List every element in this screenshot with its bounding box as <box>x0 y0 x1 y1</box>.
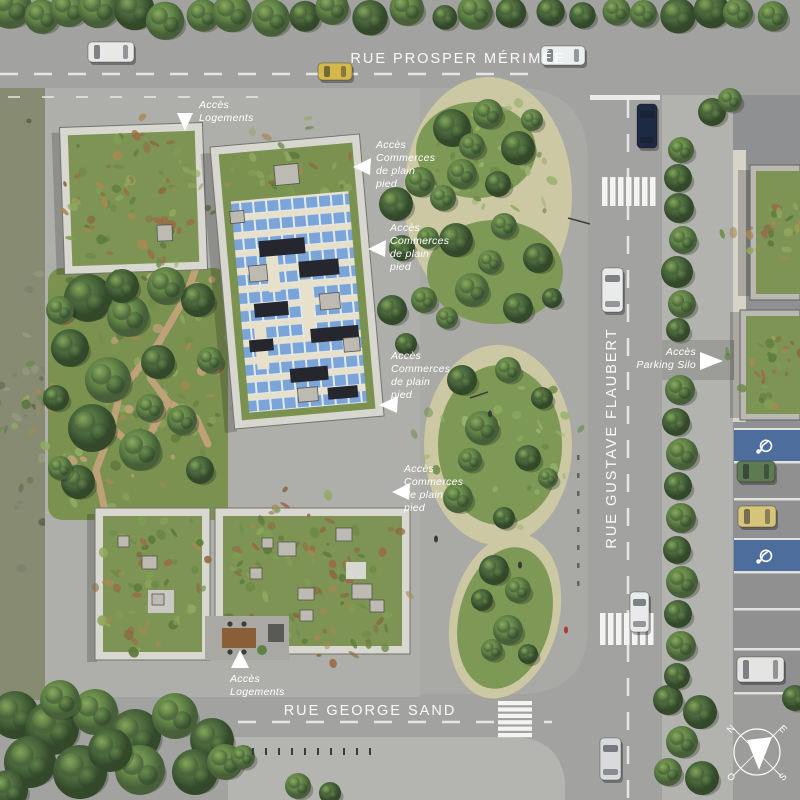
texture-speckle <box>189 518 193 523</box>
car <box>737 657 786 685</box>
building-bottom-left <box>87 508 224 662</box>
crosswalk-stripe <box>624 613 630 645</box>
paving-marker <box>577 527 580 532</box>
building-central <box>198 112 384 433</box>
bollard <box>252 748 254 755</box>
annotation-text: Commerces <box>391 363 451 375</box>
crosswalk-stripe <box>650 177 656 206</box>
paving-marker <box>577 509 580 514</box>
street-label-right: RUE GUSTAVE FLAUBERT <box>604 327 620 548</box>
annotation-text: de plain <box>404 489 443 501</box>
bottom-sidewalk <box>228 737 565 800</box>
paving-marker <box>577 563 580 568</box>
annotation-text: pied <box>389 261 412 273</box>
texture-speckle <box>382 612 391 619</box>
bollard <box>369 748 371 755</box>
crosswalk-stripe <box>634 177 640 206</box>
car <box>637 104 659 151</box>
terrace-chair <box>227 621 232 626</box>
annotation-text: Logements <box>199 112 254 124</box>
annotation-text: Accès <box>403 463 435 475</box>
bollard <box>278 748 280 755</box>
bollard <box>317 748 319 755</box>
bollard <box>330 748 332 755</box>
annotation-text: Parking Silo <box>636 359 696 371</box>
annotation-text: Accès <box>390 350 422 362</box>
annotation-text: de plain <box>390 248 429 260</box>
texture-speckle <box>102 580 110 584</box>
annotation-text: Accès <box>375 139 407 151</box>
bollard <box>304 748 306 755</box>
texture-speckle <box>16 501 24 504</box>
terrace-bench <box>268 624 284 642</box>
annotation-text: Logements <box>230 686 285 698</box>
crosswalk-stripe <box>498 727 532 731</box>
terrace-chair <box>241 621 246 626</box>
crosswalk-stripe <box>616 613 622 645</box>
annotation-text: Commerces <box>404 476 464 488</box>
paving-marker <box>577 491 580 496</box>
parking-divider <box>734 571 800 574</box>
car <box>318 63 354 83</box>
roof-skylight <box>346 562 366 579</box>
terrace-chair <box>227 649 232 654</box>
crosswalk-stripe <box>600 613 606 645</box>
paving-marker <box>577 473 580 478</box>
parking-divider <box>734 498 800 501</box>
crosswalk-stripe <box>498 714 532 718</box>
annotation-text: pied <box>390 389 413 401</box>
crosswalk-stripe <box>602 177 608 206</box>
stop-line <box>590 95 660 100</box>
building-bottom-right <box>205 486 415 669</box>
street-label-bottom: RUE GEORGE SAND <box>284 703 457 719</box>
annotation-text: Accès <box>389 222 421 234</box>
bollard <box>265 748 267 755</box>
crosswalk-stripe <box>642 177 648 206</box>
pedestrian <box>434 536 438 543</box>
terrace-table <box>222 628 256 648</box>
crosswalk-stripe <box>608 613 614 645</box>
pedestrian <box>518 562 522 569</box>
site-plan: RUE PROSPER MÉRIMÉE RUE GUSTAVE FLAUBERT… <box>0 0 800 800</box>
annotation-text: Accès <box>229 673 261 685</box>
annotation-text: pied <box>375 178 398 190</box>
paving-marker <box>577 455 580 460</box>
terrace-plant <box>257 645 267 655</box>
annotation-text: pied <box>403 502 426 514</box>
bollard <box>356 748 358 755</box>
crosswalk-stripe <box>618 177 624 206</box>
annotation-text: Accès <box>198 99 230 111</box>
crosswalk-stripe <box>498 701 532 705</box>
car <box>737 461 777 485</box>
crosswalk-stripe <box>498 707 532 711</box>
car <box>602 268 625 315</box>
handicap-spot <box>734 540 800 571</box>
annotation-text: de plain <box>391 376 430 388</box>
crosswalk-stripe <box>498 733 532 737</box>
crosswalk-stripe <box>498 720 532 724</box>
parking-divider <box>734 648 800 651</box>
annotation-text: Commerces <box>376 152 436 164</box>
car <box>738 506 778 530</box>
paving-marker <box>577 545 580 550</box>
pedestrian <box>564 627 568 634</box>
annotation-text: Commerces <box>390 235 450 247</box>
crosswalk-stripe <box>610 177 616 206</box>
bollard <box>343 748 345 755</box>
pedestrian <box>488 411 492 418</box>
car <box>630 592 651 635</box>
handicap-spot <box>734 430 800 461</box>
car <box>88 42 136 65</box>
roof-equipment <box>157 225 173 242</box>
street-label-top: RUE PROSPER MÉRIMÉE <box>350 50 565 67</box>
parking-divider <box>734 608 800 611</box>
paving-marker <box>577 581 580 586</box>
bollard <box>291 748 293 755</box>
annotation-text: de plain <box>376 165 415 177</box>
crosswalk-stripe <box>626 177 632 206</box>
building-top-left <box>51 109 219 285</box>
terrace-chair <box>241 649 246 654</box>
site-plan-svg: RUE PROSPER MÉRIMÉE RUE GUSTAVE FLAUBERT… <box>0 0 800 800</box>
car <box>600 738 623 783</box>
annotation-text: Accès <box>665 346 697 358</box>
